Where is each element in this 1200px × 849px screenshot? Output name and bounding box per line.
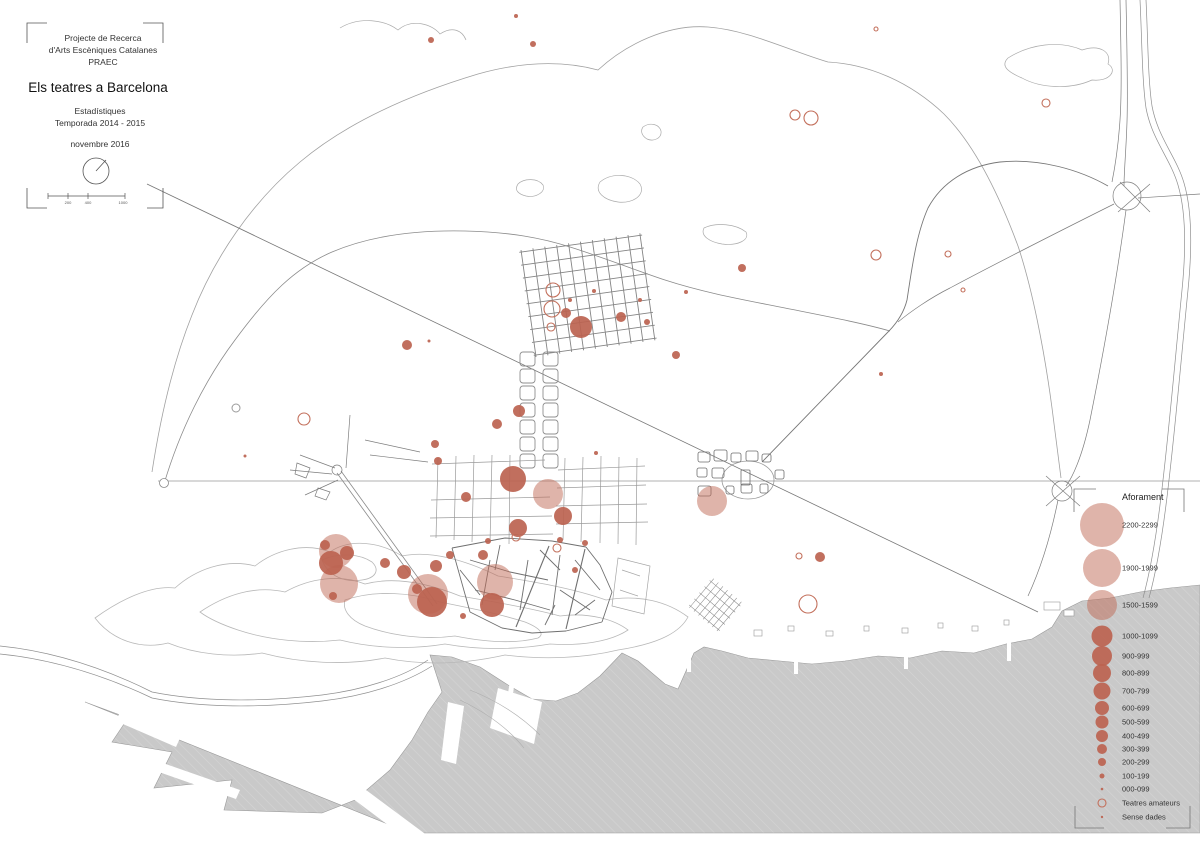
legend-entry-label: 1000-1099 bbox=[1122, 632, 1158, 641]
ronda-de-dalt bbox=[164, 231, 890, 484]
gran-via-west-roundabout bbox=[160, 479, 169, 488]
theatre-point bbox=[431, 440, 439, 448]
theatre-point bbox=[430, 560, 442, 572]
street-network-gracia bbox=[519, 233, 657, 357]
diagonal-avenue bbox=[147, 184, 1038, 612]
legend-title: Aforament bbox=[1122, 492, 1164, 502]
theatre-point bbox=[644, 319, 650, 325]
theatre-point bbox=[492, 419, 502, 429]
theatre-point bbox=[298, 413, 310, 425]
theatre-point bbox=[329, 592, 337, 600]
theatre-point bbox=[871, 250, 881, 260]
theatre-point bbox=[530, 41, 536, 47]
theatre-point bbox=[232, 404, 240, 412]
barcelona-theatre-map: Aforament 2200-22991900-19991500-1599100… bbox=[0, 0, 1200, 849]
legend-entry-label: 1500-1599 bbox=[1122, 601, 1158, 610]
legend-circle bbox=[1083, 549, 1121, 587]
theatre-point bbox=[397, 565, 411, 579]
street-network-eixample-columns bbox=[520, 352, 558, 468]
theatre-point bbox=[446, 551, 454, 559]
sea-polygon bbox=[85, 585, 1200, 833]
legend-circle bbox=[1080, 503, 1124, 547]
theatre-circles bbox=[232, 14, 1050, 619]
legend-circle bbox=[1095, 701, 1109, 715]
legend-entry-label: 200-299 bbox=[1122, 758, 1150, 767]
theatre-point bbox=[544, 301, 560, 317]
theatre-point bbox=[553, 544, 561, 552]
theatre-point bbox=[557, 537, 563, 543]
theatre-point bbox=[485, 538, 491, 544]
subtitle-1: Estadístiques bbox=[74, 106, 125, 116]
legend-entry-label: 100-199 bbox=[1122, 772, 1150, 781]
subtitle-2: Temporada 2014 - 2015 bbox=[55, 118, 146, 128]
scale-tick-1000: 1000 bbox=[119, 200, 129, 205]
legend-entry-label: 800-899 bbox=[1122, 669, 1150, 678]
theatre-point bbox=[672, 351, 680, 359]
theatre-point bbox=[790, 110, 800, 120]
theatre-point bbox=[572, 567, 578, 573]
north-compass bbox=[83, 158, 109, 184]
map-page: Aforament 2200-22991900-19991500-1599100… bbox=[0, 0, 1200, 849]
date-label: novembre 2016 bbox=[70, 139, 129, 149]
theatre-point bbox=[1042, 99, 1050, 107]
theatre-point bbox=[799, 595, 817, 613]
ronda-litoral-west-2 bbox=[0, 654, 432, 706]
sea-region bbox=[85, 585, 1200, 849]
legend-circle bbox=[1101, 788, 1104, 791]
theatre-point bbox=[616, 312, 626, 322]
project-line-1: Projecte de Recerca bbox=[64, 33, 141, 43]
besos-river bbox=[1140, 0, 1191, 598]
legend-entry-label: 1900-1999 bbox=[1122, 564, 1158, 573]
project-acronym: PRAEC bbox=[88, 57, 117, 67]
legend-circle bbox=[1096, 716, 1109, 729]
theatre-point bbox=[319, 551, 343, 575]
theatre-point bbox=[244, 455, 247, 458]
theatre-point bbox=[697, 486, 727, 516]
legend-entry-label: 500-599 bbox=[1122, 718, 1150, 727]
theatre-point bbox=[460, 613, 466, 619]
theatre-point bbox=[428, 37, 434, 43]
theatre-point bbox=[796, 553, 802, 559]
meridiana-avenue bbox=[762, 161, 1108, 462]
theatre-point bbox=[570, 316, 592, 338]
theatre-point bbox=[509, 519, 527, 537]
title-block: Projecte de Recerca d'Arts Escèniques Ca… bbox=[27, 23, 168, 208]
legend-entry-label: 000-099 bbox=[1122, 785, 1150, 794]
theatre-point bbox=[417, 587, 447, 617]
theatre-point bbox=[945, 251, 951, 257]
theatre-point bbox=[684, 290, 688, 294]
legend-entry-label: 700-799 bbox=[1122, 687, 1150, 696]
main-roads bbox=[147, 161, 1200, 612]
theatre-point bbox=[340, 546, 354, 560]
legend-circle bbox=[1096, 730, 1108, 742]
theatre-point bbox=[592, 289, 596, 293]
legend-circle bbox=[1092, 646, 1112, 666]
theatre-point bbox=[546, 283, 560, 297]
theatre-point bbox=[513, 405, 525, 417]
theatre-point bbox=[461, 492, 471, 502]
theatre-point bbox=[412, 584, 422, 594]
scale-tick-200: 200 bbox=[65, 200, 72, 205]
legend-circle bbox=[1087, 590, 1117, 620]
theatre-point bbox=[533, 479, 563, 509]
legend-entry-label: 300-399 bbox=[1122, 745, 1150, 754]
legend-entry-label: 400-499 bbox=[1122, 732, 1150, 741]
theatre-point bbox=[320, 540, 330, 550]
theatre-point bbox=[961, 288, 965, 292]
legend-circle bbox=[1093, 664, 1111, 682]
theatre-point bbox=[428, 340, 431, 343]
project-line-2: d'Arts Escèniques Catalanes bbox=[49, 45, 157, 55]
scale-bar: 200 400 1000 bbox=[48, 193, 128, 205]
theatre-point bbox=[561, 308, 571, 318]
theatre-point bbox=[568, 298, 572, 302]
legend-entry-label: Teatres amateurs bbox=[1122, 799, 1180, 808]
theatre-point bbox=[514, 14, 518, 18]
theatre-point bbox=[582, 540, 588, 546]
legend-circle bbox=[1101, 816, 1103, 818]
scale-tick-400: 400 bbox=[85, 200, 92, 205]
hill-and-pond-contours bbox=[340, 21, 1112, 245]
trinitat-interchange bbox=[898, 0, 1200, 486]
street-network-barceloneta bbox=[688, 577, 743, 632]
theatre-point bbox=[638, 298, 642, 302]
theatre-point bbox=[380, 558, 390, 568]
legend-circle bbox=[1094, 683, 1111, 700]
theatre-point bbox=[594, 451, 598, 455]
granvia-besos-interchange bbox=[1028, 476, 1080, 596]
theatre-point bbox=[738, 264, 746, 272]
theatre-point bbox=[478, 550, 488, 560]
ciutadella-park bbox=[612, 558, 650, 614]
theatre-point bbox=[804, 111, 818, 125]
theatre-point bbox=[402, 340, 412, 350]
legend-entry-label: 900-999 bbox=[1122, 652, 1150, 661]
legend-circle bbox=[1092, 626, 1113, 647]
legend-entry-label: Sense dades bbox=[1122, 813, 1166, 822]
legend-entry-label: 2200-2299 bbox=[1122, 521, 1158, 530]
legend-circle bbox=[1097, 744, 1107, 754]
beachfront-buildings bbox=[754, 620, 1009, 636]
theatre-point bbox=[874, 27, 878, 31]
espanya-structures bbox=[290, 415, 428, 500]
theatre-point bbox=[815, 552, 825, 562]
legend-circle bbox=[1100, 774, 1105, 779]
montjuic-contours bbox=[95, 543, 688, 663]
legend-entry-label: 600-699 bbox=[1122, 704, 1150, 713]
theatre-point bbox=[879, 372, 883, 376]
street-network-old-town bbox=[452, 538, 612, 633]
legend-circle bbox=[1098, 758, 1106, 766]
map-title: Els teatres a Barcelona bbox=[28, 80, 168, 95]
theatre-point bbox=[500, 466, 526, 492]
theatre-point bbox=[554, 507, 572, 525]
theatre-point bbox=[434, 457, 442, 465]
theatre-point bbox=[480, 593, 504, 617]
